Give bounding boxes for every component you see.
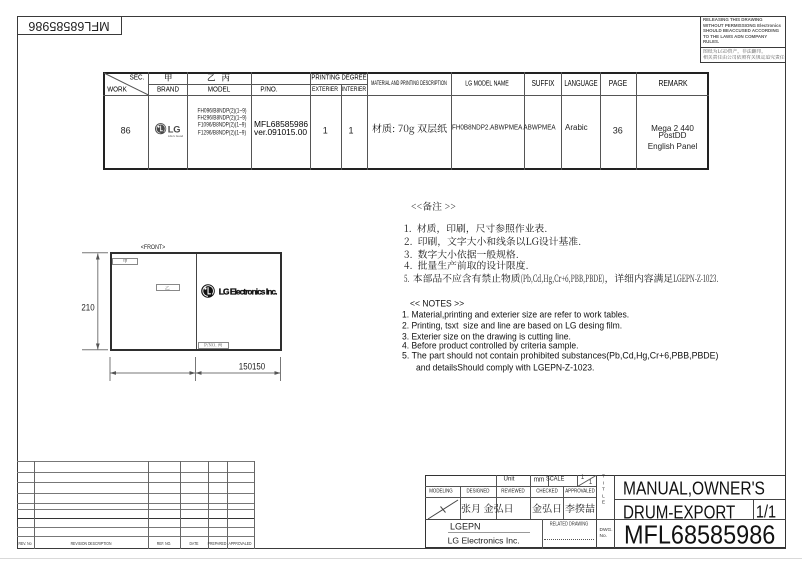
- svg-text:LG Electronics Inc.: LG Electronics Inc.: [218, 286, 276, 296]
- svg-text:LG: LG: [168, 124, 181, 134]
- svg-text:Life's Good: Life's Good: [168, 134, 183, 138]
